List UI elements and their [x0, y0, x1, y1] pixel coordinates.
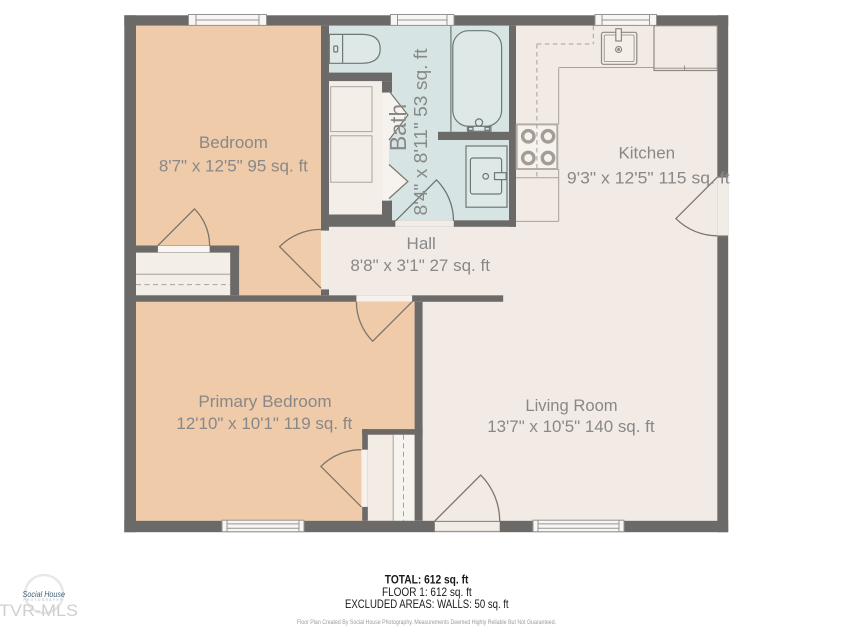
svg-text:13'7" x 10'5" 140 sq. ft: 13'7" x 10'5" 140 sq. ft: [487, 417, 655, 436]
svg-text:Living Room: Living Room: [525, 396, 617, 415]
svg-text:Kitchen: Kitchen: [618, 144, 675, 163]
svg-text:Floor Plan Created By Social H: Floor Plan Created By Social House Photo…: [297, 620, 556, 626]
svg-text:9'3" x 12'5" 115 sq. ft: 9'3" x 12'5" 115 sq. ft: [567, 168, 730, 187]
svg-text:8'7" x 12'5" 95 sq. ft: 8'7" x 12'5" 95 sq. ft: [159, 156, 308, 175]
svg-text:Hall: Hall: [407, 234, 436, 253]
svg-text:Primary Bedroom: Primary Bedroom: [198, 392, 331, 411]
svg-text:TVR-MLS: TVR-MLS: [0, 601, 78, 620]
svg-text:8'4" x 8'11" 53 sq. ft: 8'4" x 8'11" 53 sq. ft: [411, 49, 431, 216]
svg-text:Bedroom: Bedroom: [199, 133, 268, 152]
svg-text:8'8" x 3'1" 27 sq. ft: 8'8" x 3'1" 27 sq. ft: [350, 256, 490, 275]
svg-text:12'10" x 10'1" 119 sq. ft: 12'10" x 10'1" 119 sq. ft: [176, 414, 352, 433]
svg-text:EXCLUDED AREAS: WALLS: 50 sq.: EXCLUDED AREAS: WALLS: 50 sq. ft: [345, 597, 509, 611]
svg-text:Bath: Bath: [385, 104, 411, 151]
